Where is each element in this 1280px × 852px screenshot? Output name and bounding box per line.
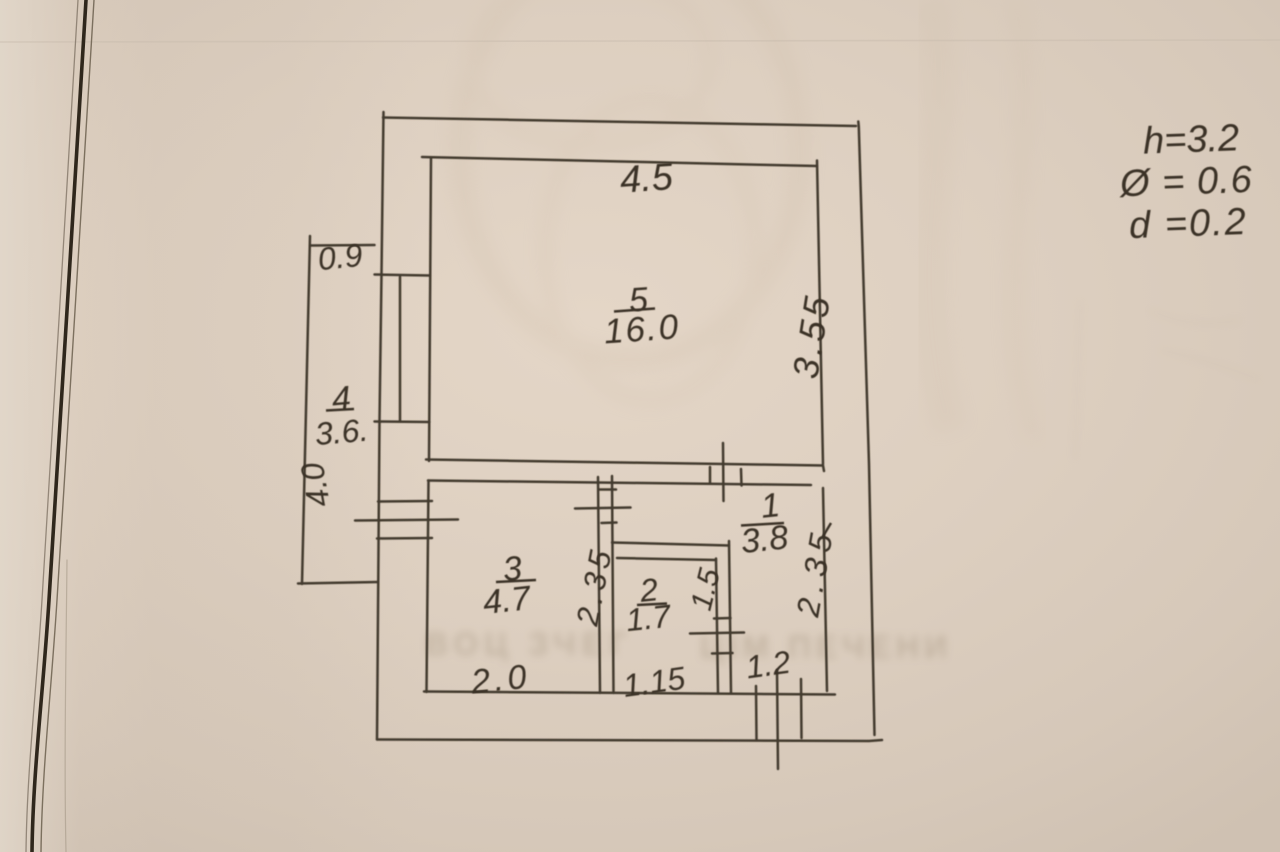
svg-text:0.9: 0.9 xyxy=(316,237,364,277)
svg-text:4.5: 4.5 xyxy=(619,156,675,202)
svg-text:d =0.2: d =0.2 xyxy=(1128,201,1248,247)
svg-text:4.0: 4.0 xyxy=(294,460,337,510)
svg-text:Ø = 0.6: Ø = 0.6 xyxy=(1117,159,1253,206)
svg-text:16.0: 16.0 xyxy=(603,307,682,351)
svg-text:2.0: 2.0 xyxy=(468,657,532,701)
svg-text:4.7: 4.7 xyxy=(481,579,533,622)
svg-text:1.2: 1.2 xyxy=(744,644,793,686)
svg-text:3.8: 3.8 xyxy=(739,518,790,561)
svg-text:1.7: 1.7 xyxy=(624,598,673,639)
svg-text:ВОЦ ЗЧЕГ: ВОЦ ЗЧЕГ xyxy=(425,626,633,662)
svg-text:h=3.2: h=3.2 xyxy=(1142,117,1240,162)
svg-text:3.6.: 3.6. xyxy=(313,412,369,453)
